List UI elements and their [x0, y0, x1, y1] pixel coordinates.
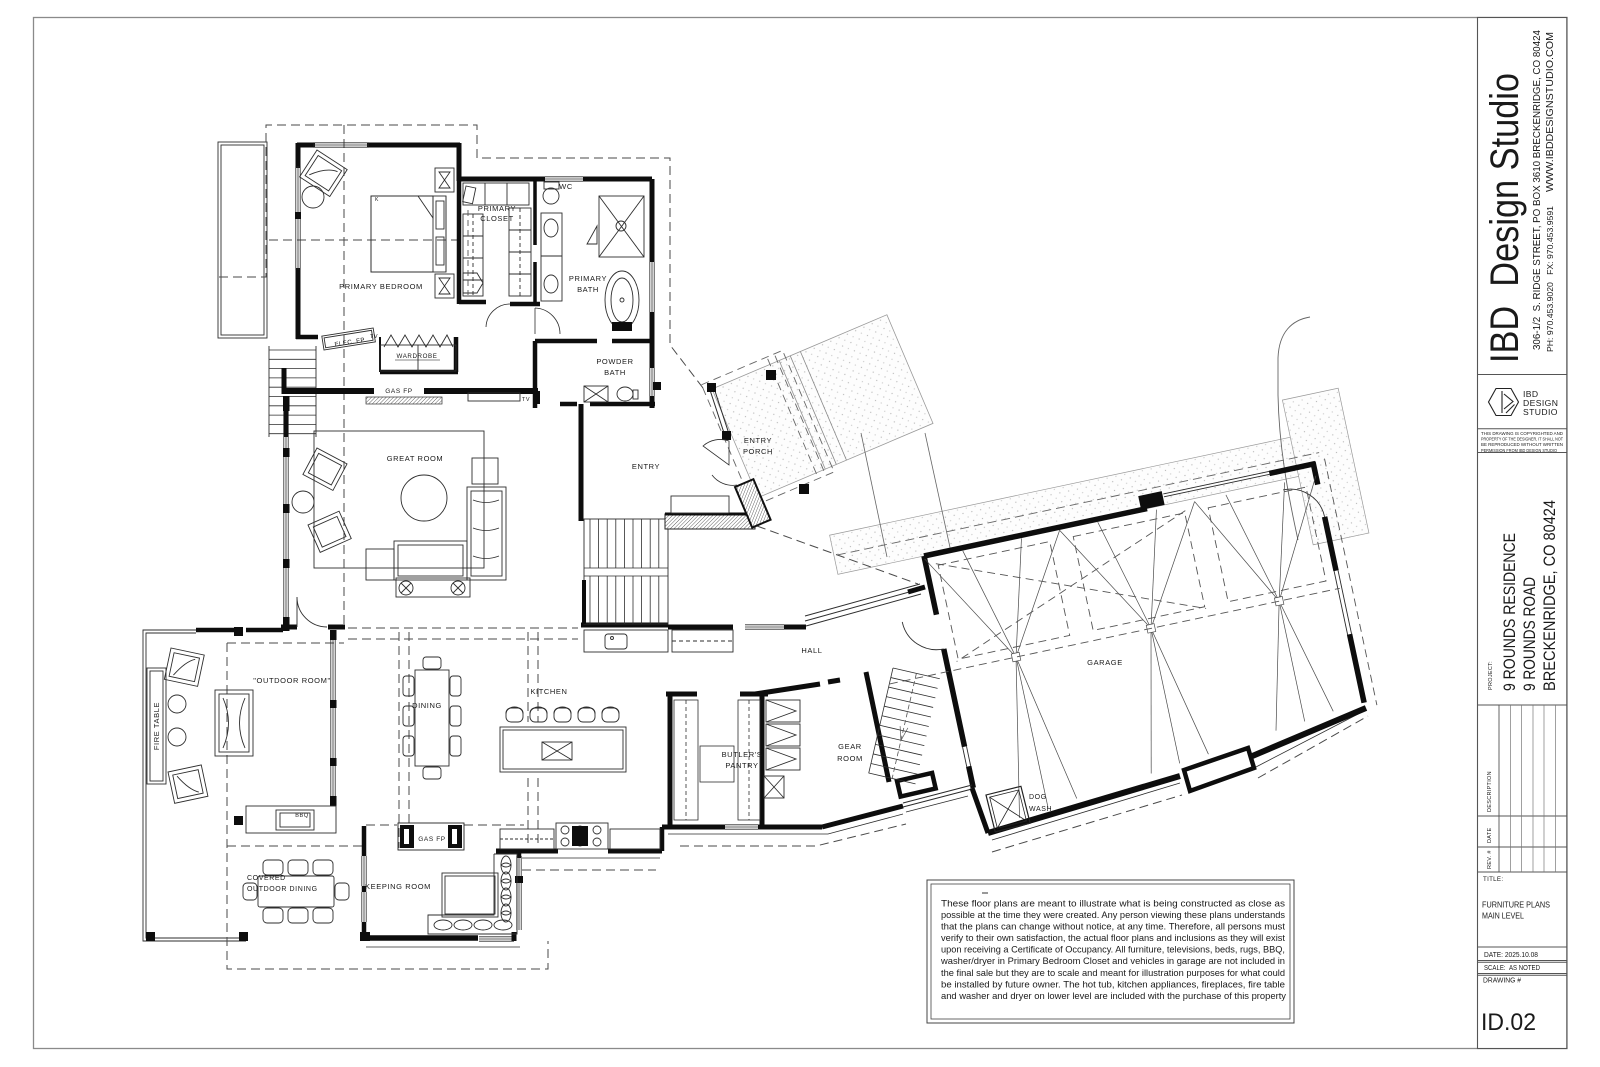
svg-text:washer/dryer in Primary Bedroo: washer/dryer in Primary Bedroom Closet a… — [940, 955, 1285, 966]
svg-text:GEAR: GEAR — [838, 742, 862, 751]
svg-text:PH: 970.453.9020 FX: 970.453: PH: 970.453.9020 FX: 970.453.9591 — [1546, 206, 1555, 352]
svg-text:ID.02: ID.02 — [1481, 1009, 1536, 1036]
svg-text:CLOSET: CLOSET — [480, 214, 514, 223]
svg-text:K: K — [375, 197, 379, 203]
svg-text:GARAGE: GARAGE — [1087, 658, 1123, 667]
svg-text:PERMISSION FROM IBD DESIGN STU: PERMISSION FROM IBD DESIGN STUDIO — [1481, 448, 1557, 453]
svg-text:IBD Design Studio: IBD Design Studio — [1483, 73, 1527, 363]
svg-text:HALL: HALL — [801, 646, 822, 655]
svg-text:ENTRY: ENTRY — [744, 436, 772, 445]
svg-text:BBQ: BBQ — [295, 813, 309, 819]
svg-text:9 ROUNDS RESIDENCE: 9 ROUNDS RESIDENCE — [1500, 533, 1519, 691]
svg-text:KEEPING ROOM: KEEPING ROOM — [365, 882, 431, 891]
svg-text:PROPERTY OF THE DESIGNER, IT S: PROPERTY OF THE DESIGNER, IT SHALL NOT — [1481, 437, 1563, 442]
svg-text:POWDER: POWDER — [596, 357, 633, 366]
svg-text:PORCH: PORCH — [743, 447, 773, 456]
svg-text:and washer and dryer on lower: and washer and dryer on lower level are … — [941, 990, 1286, 1001]
svg-text:be installed by future owner.: be installed by future owner. The hot tu… — [941, 978, 1285, 989]
svg-text:TV: TV — [370, 334, 378, 340]
svg-text:DINING: DINING — [412, 701, 442, 710]
svg-text:WASH: WASH — [1029, 806, 1052, 813]
svg-text:KITCHEN: KITCHEN — [530, 687, 567, 696]
svg-text:STUDIO: STUDIO — [1523, 407, 1558, 417]
svg-text:FIRE TABLE: FIRE TABLE — [152, 702, 161, 750]
svg-text:REV. #: REV. # — [1487, 850, 1493, 869]
svg-text:BATH: BATH — [577, 285, 599, 294]
svg-text:DOG: DOG — [1029, 794, 1047, 801]
svg-text:9 ROUNDS ROAD: 9 ROUNDS ROAD — [1520, 577, 1539, 691]
svg-text:WC: WC — [559, 182, 573, 191]
svg-text:WWW.IBDDESIGNSTUDIO.COM: WWW.IBDDESIGNSTUDIO.COM — [1544, 32, 1556, 192]
svg-text:306-1/2 S. RIDGE STREET, PO B: 306-1/2 S. RIDGE STREET, PO BOX 3610 BRE… — [1531, 30, 1543, 350]
svg-text:ENTRY: ENTRY — [632, 462, 660, 471]
svg-text:BATH: BATH — [604, 368, 626, 377]
svg-text:PANTRY: PANTRY — [725, 761, 758, 770]
svg-text:SCALE: AS NOTED: SCALE: AS NOTED — [1484, 963, 1540, 972]
svg-text:"OUTDOOR ROOM": "OUTDOOR ROOM" — [253, 676, 330, 685]
svg-text:DRAWING #: DRAWING # — [1483, 976, 1521, 985]
svg-text:PRIMARY BEDROOM: PRIMARY BEDROOM — [339, 282, 423, 291]
svg-text:THIS DRAWING IS COPYRIGHTED AN: THIS DRAWING IS COPYRIGHTED AND — [1481, 431, 1564, 436]
svg-text:BUTLER'S: BUTLER'S — [722, 750, 763, 759]
svg-text:possible at the time they were: possible at the time they were created. … — [941, 909, 1285, 920]
svg-text:These floor plans are meant to: These floor plans are meant to illustrat… — [941, 898, 1285, 909]
svg-text:verify to their own satisfacti: verify to their own satisfaction, the ac… — [941, 932, 1285, 943]
svg-text:ROOM: ROOM — [837, 754, 863, 763]
svg-text:TV: TV — [522, 397, 530, 403]
svg-text:GREAT ROOM: GREAT ROOM — [387, 454, 444, 463]
svg-text:DATE: 2025.10.08: DATE: 2025.10.08 — [1484, 950, 1538, 959]
svg-text:BE REPRODUCED WITHOUT WRITTEN: BE REPRODUCED WITHOUT WRITTEN — [1481, 442, 1563, 447]
svg-text:PROJECT:: PROJECT: — [1488, 661, 1494, 690]
svg-text:that the plans can change with: that the plans can change without notice… — [941, 921, 1285, 932]
svg-text:WARDROBE: WARDROBE — [396, 353, 437, 360]
svg-text:GAS FP: GAS FP — [418, 836, 445, 843]
svg-text:COVERED: COVERED — [247, 875, 286, 882]
svg-text:DATE: DATE — [1487, 828, 1493, 843]
svg-text:TITLE:: TITLE: — [1483, 876, 1503, 883]
svg-text:GAS FP: GAS FP — [385, 388, 412, 395]
svg-text:OUTDOOR DINING: OUTDOOR DINING — [247, 886, 318, 893]
svg-text:FURNITURE PLANS: FURNITURE PLANS — [1482, 901, 1550, 910]
svg-text:DESCRIPTION: DESCRIPTION — [1487, 771, 1493, 812]
svg-text:PRIMARY: PRIMARY — [478, 204, 516, 213]
svg-text:MAIN LEVEL: MAIN LEVEL — [1482, 912, 1524, 921]
svg-text:BRECKENRIDGE, CO 80424: BRECKENRIDGE, CO 80424 — [1540, 500, 1559, 691]
svg-text:upon receiving a Certificate o: upon receiving a Certificate of Occupanc… — [941, 944, 1285, 955]
svg-text:PRIMARY: PRIMARY — [569, 274, 607, 283]
svg-text:the final sale but they are to: the final sale but they are to scale and… — [941, 967, 1285, 978]
